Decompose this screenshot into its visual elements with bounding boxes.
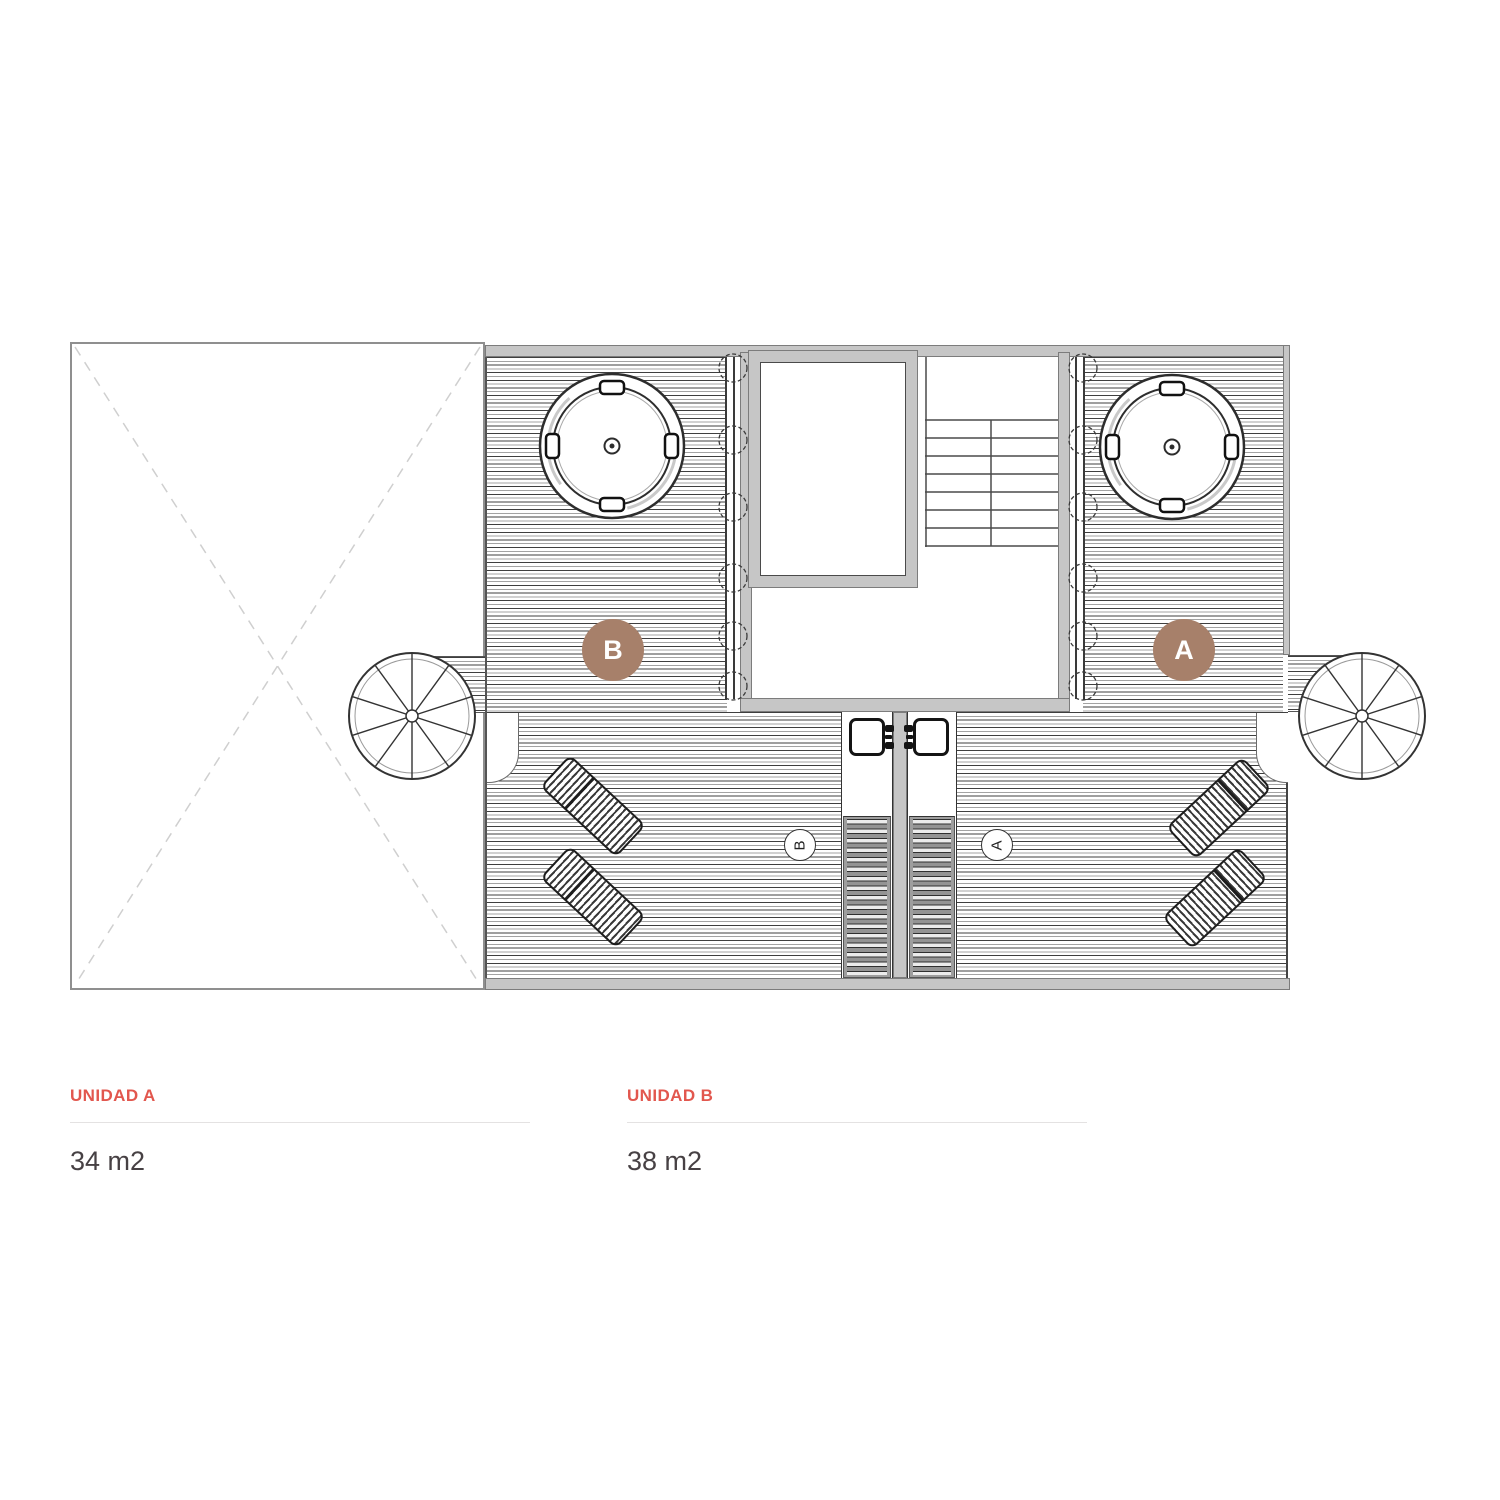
access-ladder-left — [843, 816, 891, 978]
grill-knob — [904, 725, 913, 732]
unit-info-b: UNIDAD B 38 m2 — [627, 1086, 1087, 1177]
jacuzzi-left — [537, 371, 687, 521]
roof-floor-plan: B A — [70, 342, 1430, 990]
right-wall — [1283, 345, 1290, 655]
planters-right — [1066, 350, 1100, 702]
stair-treads — [925, 357, 1058, 547]
unit-marker-a: A — [981, 829, 1013, 861]
unit-marker-b: B — [784, 829, 816, 861]
grill-knob — [906, 735, 913, 739]
unit-marker-a-label: A — [988, 840, 1005, 850]
divider — [70, 1122, 530, 1123]
deck-left-edge — [485, 345, 487, 978]
unit-a-badge: A — [1153, 619, 1215, 681]
spiral-staircase-right — [1295, 649, 1429, 783]
planters-left — [716, 350, 750, 702]
grill-knob — [885, 725, 894, 732]
grill-knob — [904, 742, 913, 749]
page: B A — [0, 0, 1500, 1500]
interior-stairs — [925, 357, 1058, 547]
grill-knob — [885, 742, 894, 749]
spiral-staircase-left — [345, 649, 479, 783]
jacuzzi-right — [1097, 372, 1247, 522]
bbq-grill-right-icon — [913, 718, 949, 756]
skylight-opening — [760, 362, 906, 576]
corridor-divider-wall — [893, 712, 907, 978]
ladder-rungs — [913, 819, 951, 975]
bbq-grill-left-icon — [849, 718, 885, 756]
unit-b-badge: B — [582, 619, 644, 681]
grill-knob — [885, 735, 892, 739]
unit-a-area: 34 m2 — [70, 1146, 530, 1177]
access-ladder-right — [909, 816, 955, 978]
unit-b-name: UNIDAD B — [627, 1086, 1087, 1106]
ladder-rungs — [847, 819, 887, 975]
stairwell-bottom-wall — [740, 698, 1070, 712]
unit-marker-b-label: B — [791, 840, 808, 850]
unit-a-name: UNIDAD A — [70, 1086, 530, 1106]
bottom-wall — [485, 978, 1290, 990]
unit-b-area: 38 m2 — [627, 1146, 1087, 1177]
unit-info-a: UNIDAD A 34 m2 — [70, 1086, 530, 1177]
divider — [627, 1122, 1087, 1123]
